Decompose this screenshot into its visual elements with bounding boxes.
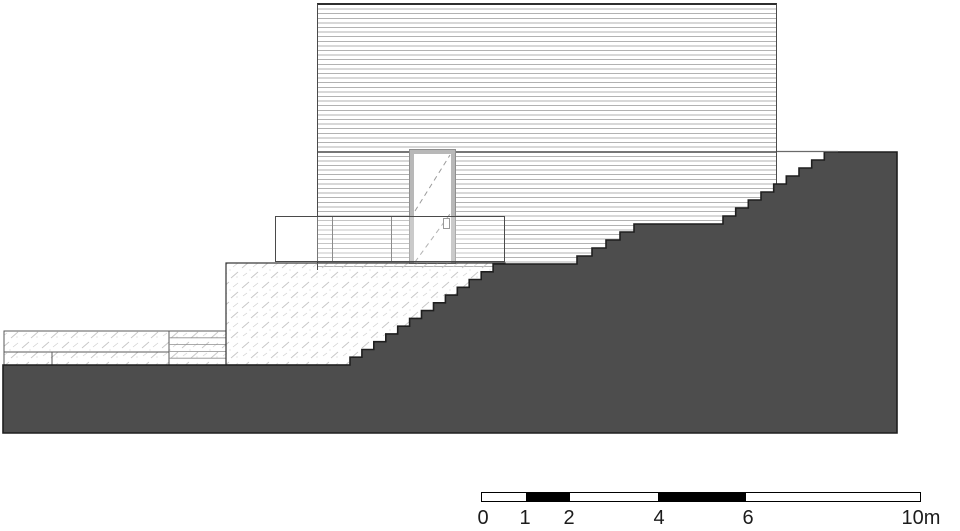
scale-bar-segment-4-6m: [658, 493, 746, 501]
site-section-svg: [0, 0, 960, 531]
scale-bar: [481, 492, 921, 502]
scale-bar-segment-1-2m: [526, 493, 570, 501]
scale-label-6: 6: [742, 506, 753, 530]
layered-strip: [169, 331, 226, 365]
scale-label-2: 2: [563, 506, 574, 530]
scale-bar-labels: 0 1 2 4 6 10m: [481, 506, 922, 531]
scale-label-0: 0: [477, 506, 488, 530]
elevation-drawing-canvas: 0 1 2 4 6 10m: [0, 0, 960, 531]
scale-label-10m: 10m: [902, 506, 941, 530]
wall-layers-left: [4, 331, 226, 365]
scale-label-1: 1: [519, 506, 530, 530]
scale-label-4: 4: [653, 506, 664, 530]
